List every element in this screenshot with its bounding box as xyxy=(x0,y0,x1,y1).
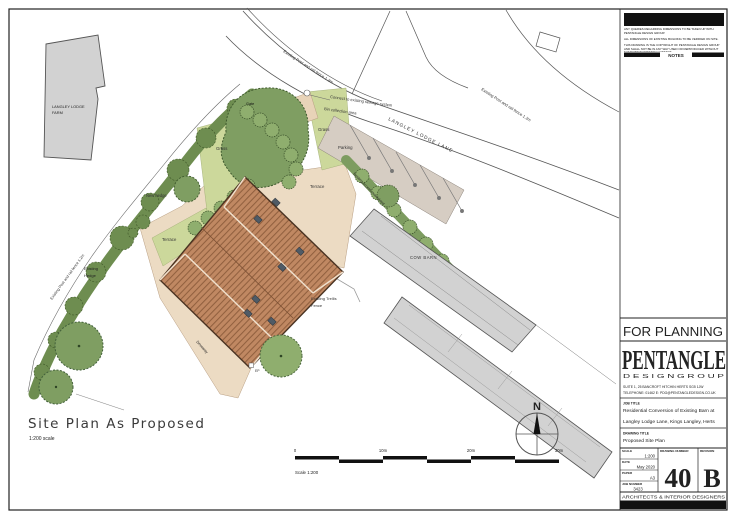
farm-label-line2: FARM xyxy=(52,110,63,115)
drawing-number-label: DRAWING NUMBER xyxy=(660,449,689,453)
note-2: ALL DIMENSIONS OF EXISTING BUILDING TO B… xyxy=(624,38,724,42)
studio-contact: TELEPHONE: 01462 E: PDG@PENTANGLEDESIGN.… xyxy=(623,391,716,395)
plan-title: Site Plan As Proposed xyxy=(28,416,205,432)
studio-address: SUITE 1, 25 BANCROFT HITCHIN HERTS SG5 1… xyxy=(623,385,704,389)
existing-hedge-label-1: Existing xyxy=(84,266,98,271)
site-plan-svg: LANGLEY LODGE FARM xyxy=(0,0,736,520)
status-stamp: FOR PLANNING xyxy=(623,325,723,339)
paper-value: A3 xyxy=(650,476,656,481)
grass-east-label: Grass xyxy=(318,127,329,132)
scale-tick-30: 30m xyxy=(555,448,564,453)
terrace-west-label: Terrace xyxy=(162,237,177,242)
notes-panel: ANY QUERIES REGARDING DIMENSIONS TO BE T… xyxy=(624,13,724,58)
drawing-number-value: 40 xyxy=(665,463,692,493)
ep-marker xyxy=(249,363,254,368)
ep-label: EP xyxy=(255,369,260,373)
scale-value: 1:200 xyxy=(645,454,656,459)
drawing-title: Proposed Site Plan xyxy=(623,438,665,444)
notes-bar-left xyxy=(624,53,660,58)
farm-label-line1: LANGLEY LODGE xyxy=(52,104,85,109)
job-title-line2: Langley Lodge Lane, Kings Langley, Herts xyxy=(623,419,715,425)
new-hedge-label: New hedge xyxy=(146,193,167,198)
title-block-footer: ARCHITECTS & INTERIOR DESIGNERS xyxy=(622,495,725,500)
drawing-sheet: LANGLEY LODGE FARM xyxy=(0,0,736,520)
revision-value: B xyxy=(703,464,720,493)
sewage-connection-marker xyxy=(304,90,310,96)
cow-barn-label: COW BARN xyxy=(410,255,437,260)
drawing-title-label: DRAWING TITLE xyxy=(623,432,650,436)
logo-subtitle: D E S I G N G R O U P xyxy=(623,374,725,380)
terrace-north-label: Terrace xyxy=(310,184,325,189)
revision-label: REVISION xyxy=(700,449,714,453)
north-label: N xyxy=(533,401,541,413)
paper-label: PAPER xyxy=(622,471,633,475)
parking-label: Parking xyxy=(338,145,353,150)
note-3: THIS DRAWING IS THE COPYRIGHT OF PENTANG… xyxy=(624,44,724,52)
title-block-bottom-bar xyxy=(620,501,726,510)
notes-header-bar xyxy=(624,13,724,26)
logo-wordmark: PENTANGLE xyxy=(622,345,726,375)
notes-title: NOTES xyxy=(668,53,684,58)
sheet-border xyxy=(9,9,727,510)
tree-mid-west xyxy=(174,176,200,202)
job-title-line1: Residential Conversion of Existing Barn … xyxy=(623,408,715,414)
job-number-label: JOB NUMBER xyxy=(622,482,643,486)
scale-caption: Scale 1:200 xyxy=(295,470,319,475)
plan-title-scale: 1:200 scale xyxy=(29,436,55,442)
gate-label: Gate xyxy=(246,102,254,106)
job-number-value: 3423 xyxy=(633,487,643,492)
job-title-label: JOB TITLE xyxy=(623,402,641,406)
grass-west-label: Grass xyxy=(216,146,227,151)
note-1: ANY QUERIES REGARDING DIMENSIONS TO BE T… xyxy=(624,28,724,35)
scale-tick-20: 20m xyxy=(467,448,476,453)
scale-label: SCALE xyxy=(622,449,632,453)
notes-bar-right xyxy=(692,53,724,58)
trellis-label-2: Fence xyxy=(311,303,323,308)
notes-text-block: ANY QUERIES REGARDING DIMENSIONS TO BE T… xyxy=(624,28,724,52)
trellis-label-1: Existing Trellis xyxy=(311,296,337,301)
existing-hedge-label-2: Hedge xyxy=(84,273,97,278)
date-label: DATE xyxy=(622,460,630,464)
scale-tick-10: 10m xyxy=(379,448,388,453)
date-value: May 2020 xyxy=(637,465,656,470)
